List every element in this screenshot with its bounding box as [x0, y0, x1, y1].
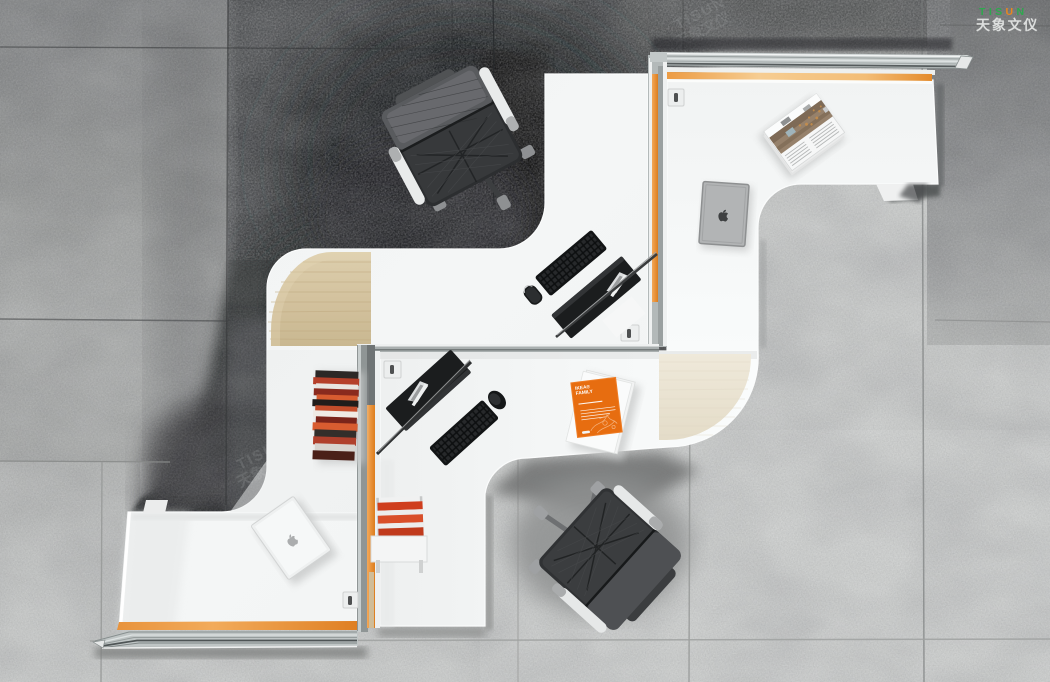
svg-text:天象文仪: 天象文仪	[976, 17, 1039, 33]
